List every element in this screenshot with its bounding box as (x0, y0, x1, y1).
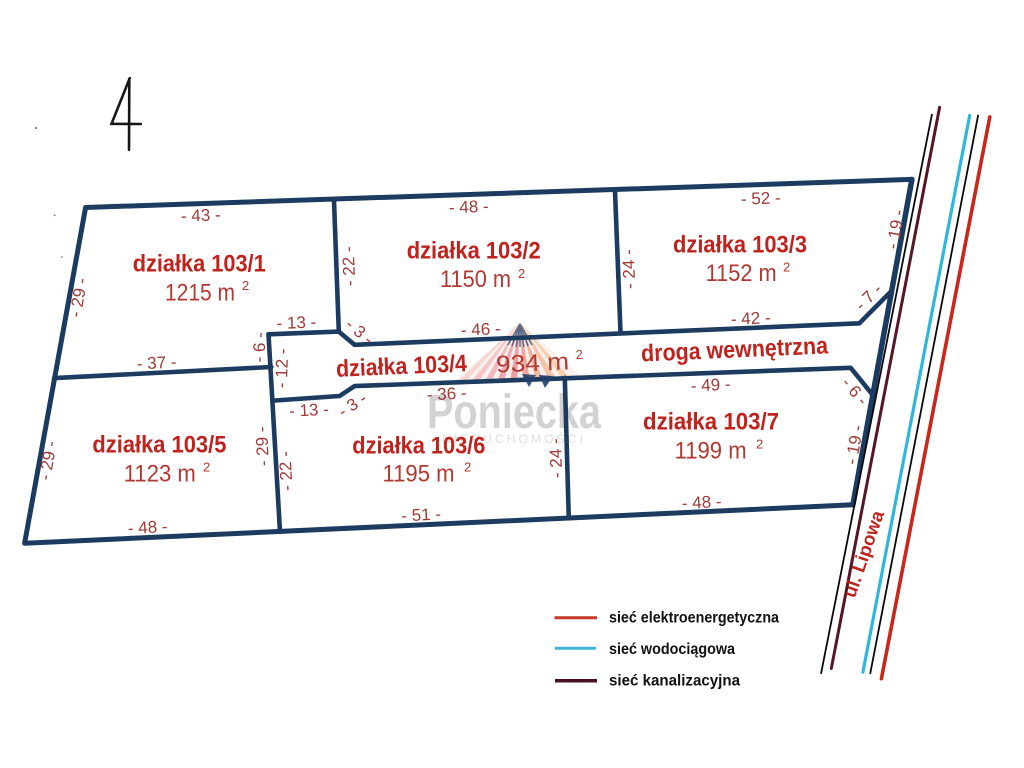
svg-text:2: 2 (464, 460, 471, 475)
svg-text:1199 m: 1199 m (675, 438, 747, 465)
svg-text:sieć wodociągowa: sieć wodociągowa (609, 641, 735, 658)
svg-text:1215 m: 1215 m (165, 280, 235, 307)
svg-text:- 29 -: - 29 - (252, 426, 273, 467)
svg-text:- 48 -: - 48 - (681, 492, 722, 513)
svg-text:- 22 -: - 22 - (275, 451, 296, 492)
svg-text:- 42 -: - 42 - (731, 308, 771, 329)
svg-text:- 48 -: - 48 - (127, 517, 168, 538)
svg-text:- 37 -: - 37 - (136, 352, 177, 373)
svg-text:- 12 -: - 12 - (272, 348, 292, 388)
svg-text:- 49 -: - 49 - (690, 375, 731, 396)
svg-text:1152 m: 1152 m (706, 260, 777, 287)
svg-text:2: 2 (242, 278, 249, 293)
svg-text:działka 103/3: działka 103/3 (673, 232, 807, 259)
svg-text:działka 103/5: działka 103/5 (92, 432, 226, 459)
svg-text:- 52 -: - 52 - (741, 188, 781, 208)
svg-text:sieć kanalizacyjna: sieć kanalizacyjna (609, 673, 740, 690)
svg-text:2: 2 (756, 437, 763, 452)
svg-text:- 22 -: - 22 - (339, 246, 359, 286)
svg-text:934 m: 934 m (495, 348, 569, 378)
svg-text:2: 2 (575, 347, 583, 362)
svg-text:- 46 -: - 46 - (461, 319, 501, 340)
svg-text:- 6 -: - 6 - (249, 332, 269, 363)
svg-text:1123 m: 1123 m (124, 461, 196, 488)
svg-text:2: 2 (518, 266, 525, 281)
svg-text:- 13 -: - 13 - (276, 313, 316, 333)
svg-text:2: 2 (783, 260, 790, 275)
svg-text:- 36 -: - 36 - (426, 383, 467, 404)
svg-text:działka 103/7: działka 103/7 (643, 409, 779, 436)
svg-text:1150 m: 1150 m (440, 266, 511, 293)
svg-text:2: 2 (203, 460, 210, 475)
svg-text:działka 103/2: działka 103/2 (407, 238, 541, 265)
svg-text:- 24 -: - 24 - (546, 438, 566, 478)
svg-text:sieć elektroenergetyczna: sieć elektroenergetyczna (609, 610, 779, 627)
svg-text:1195 m: 1195 m (383, 461, 455, 488)
svg-text:- 24 -: - 24 - (619, 249, 639, 289)
svg-text:działka 103/4: działka 103/4 (335, 350, 468, 383)
svg-text:- 48 -: - 48 - (449, 197, 489, 217)
svg-text:działka 103/1: działka 103/1 (133, 251, 266, 278)
svg-text:- 43 -: - 43 - (181, 205, 221, 225)
svg-text:działka 103/6: działka 103/6 (352, 433, 485, 460)
svg-text:- 51 -: - 51 - (401, 504, 442, 525)
svg-text:- 13 -: - 13 - (289, 400, 330, 421)
